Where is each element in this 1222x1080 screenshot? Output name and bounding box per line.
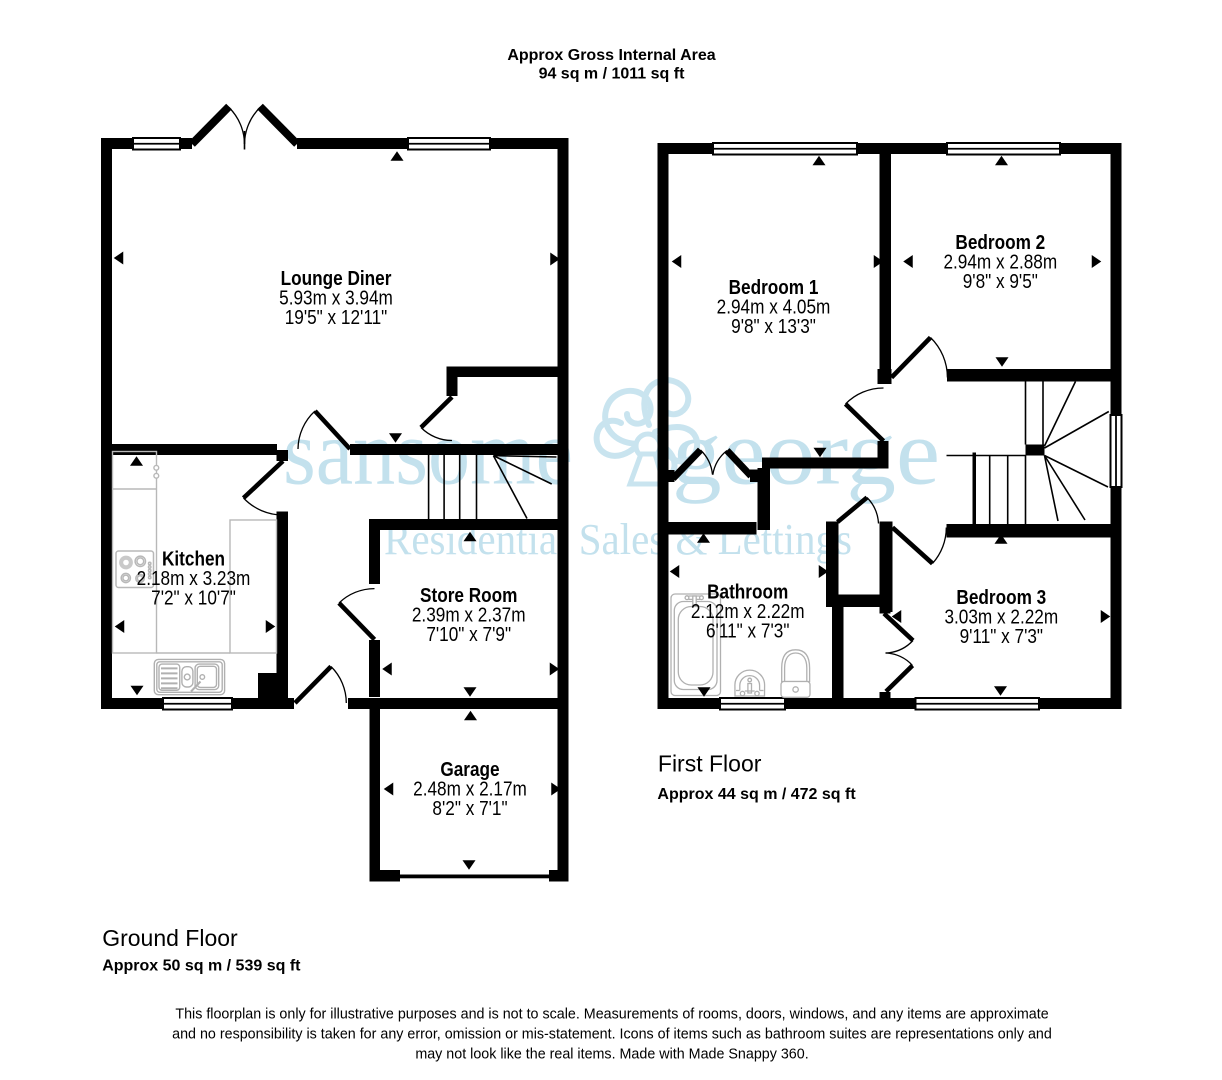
- svg-text:9'8" x 9'5": 9'8" x 9'5": [963, 270, 1038, 293]
- svg-text:and no responsibility is taken: and no responsibility is taken for any e…: [172, 1027, 1052, 1043]
- svg-text:First Floor: First Floor: [658, 751, 762, 777]
- svg-text:8'2" x 7'1": 8'2" x 7'1": [432, 797, 507, 820]
- svg-text:9'11" x 7'3": 9'11" x 7'3": [960, 625, 1043, 648]
- svg-text:6'11" x 7'3": 6'11" x 7'3": [706, 619, 789, 642]
- svg-text:This floorplan is only for ill: This floorplan is only for illustrative …: [175, 1006, 1048, 1022]
- svg-text:Approx Gross Internal Area: Approx Gross Internal Area: [507, 47, 715, 64]
- svg-text:Ground Floor: Ground Floor: [102, 925, 238, 951]
- svg-text:94 sq m / 1011 sq ft: 94 sq m / 1011 sq ft: [539, 66, 686, 83]
- svg-text:Approx 44 sq m / 472 sq ft: Approx 44 sq m / 472 sq ft: [657, 786, 856, 803]
- svg-text:7'2" x 10'7": 7'2" x 10'7": [151, 586, 236, 609]
- svg-text:7'10" x 7'9": 7'10" x 7'9": [426, 623, 511, 646]
- svg-text:Approx 50 sq m / 539 sq ft: Approx 50 sq m / 539 sq ft: [102, 957, 301, 974]
- svg-text:19'5" x 12'11": 19'5" x 12'11": [285, 306, 388, 329]
- svg-text:george: george: [672, 402, 940, 505]
- svg-text:may not look like the real ite: may not look like the real items. Made w…: [415, 1047, 808, 1063]
- svg-text:9'8" x 13'3": 9'8" x 13'3": [731, 315, 816, 338]
